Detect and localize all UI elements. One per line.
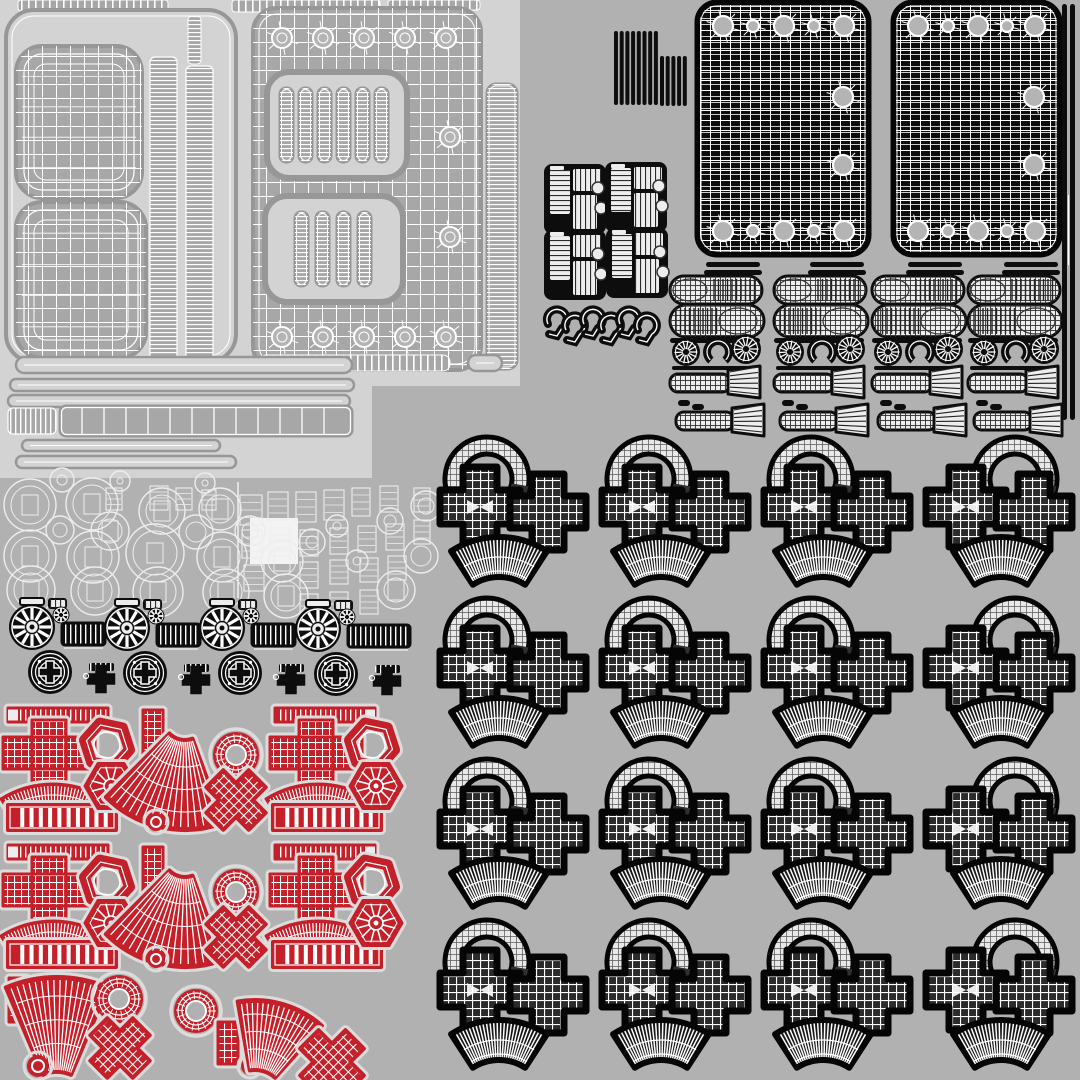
black-panel-island-2	[893, 2, 1060, 255]
black-panel-island-1	[697, 2, 869, 255]
uv-atlas-canvas	[0, 0, 1080, 1080]
connector-cluster-2	[605, 162, 668, 232]
pad-island-2	[16, 202, 146, 358]
uv-atlas-sheet	[0, 0, 1080, 1080]
connector-cluster-1	[544, 164, 607, 234]
pad-island-1	[16, 46, 142, 198]
side-strip-island	[487, 84, 517, 369]
door-frame-island	[6, 10, 236, 362]
connector-cluster-4	[606, 228, 669, 298]
vent-panel-island	[253, 8, 481, 370]
connector-cluster-3	[544, 230, 607, 300]
